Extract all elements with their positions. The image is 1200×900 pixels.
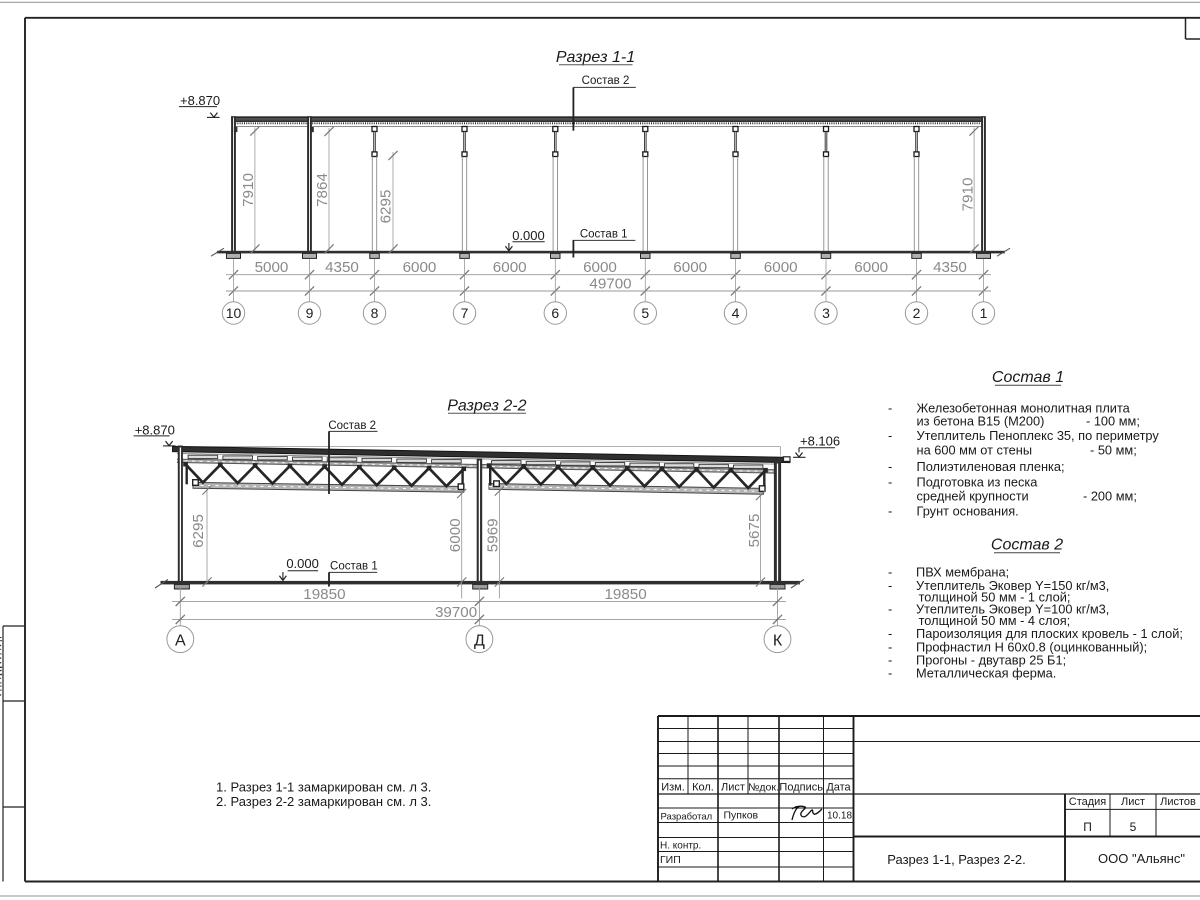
- svg-text:19850: 19850: [604, 586, 646, 603]
- svg-text:средней крупности: средней крупности: [917, 489, 1029, 504]
- svg-text:на 600 мм от стены: на 600 мм от стены: [917, 443, 1033, 458]
- svg-text:7910: 7910: [959, 178, 976, 212]
- svg-text:Разрез 1-1: Разрез 1-1: [556, 49, 635, 66]
- svg-text:4350: 4350: [933, 259, 967, 276]
- svg-text:8: 8: [371, 305, 379, 321]
- svg-text:49700: 49700: [589, 276, 631, 293]
- svg-text:6000: 6000: [854, 259, 888, 276]
- svg-text:6000: 6000: [583, 259, 617, 276]
- svg-text:5675: 5675: [746, 514, 763, 548]
- svg-text:Металлическая ферма.: Металлическая ферма.: [916, 666, 1056, 681]
- svg-text:5: 5: [641, 305, 649, 321]
- svg-text:П: П: [1083, 820, 1092, 834]
- svg-text:-: -: [888, 401, 892, 416]
- svg-text:6000: 6000: [764, 259, 798, 276]
- svg-text:-: -: [888, 475, 892, 490]
- svg-text:+8.106: +8.106: [800, 433, 840, 448]
- svg-text:Кол.: Кол.: [692, 781, 714, 793]
- svg-text:№док.: №док.: [748, 781, 779, 793]
- svg-text:Состав 1: Состав 1: [580, 228, 628, 240]
- svg-text:6000: 6000: [673, 259, 707, 276]
- svg-text:ООО "Альянс": ООО "Альянс": [1098, 851, 1185, 866]
- svg-text:- 50 мм;: - 50 мм;: [1090, 443, 1137, 458]
- svg-text:5: 5: [1130, 820, 1137, 834]
- svg-text:3: 3: [822, 305, 830, 321]
- svg-text:-: -: [888, 578, 892, 593]
- svg-text:Состав 2: Состав 2: [328, 420, 376, 432]
- svg-text:Полиэтиленовая пленка;: Полиэтиленовая пленка;: [917, 459, 1065, 474]
- svg-text:-: -: [888, 602, 892, 617]
- svg-text:6295: 6295: [378, 190, 395, 224]
- svg-text:Разрез 2-2: Разрез 2-2: [447, 398, 526, 415]
- svg-text:Состав 2: Состав 2: [582, 75, 630, 87]
- svg-text:Состав 1: Состав 1: [330, 560, 378, 572]
- svg-text:10: 10: [226, 305, 242, 321]
- svg-text:Подпись: Подпись: [779, 781, 823, 793]
- svg-text:6000: 6000: [403, 259, 437, 276]
- svg-text:5969: 5969: [485, 518, 502, 552]
- svg-text:Грунт основания.: Грунт основания.: [917, 504, 1019, 519]
- svg-text:Листов: Листов: [1160, 796, 1196, 808]
- svg-text:Утеплитель Пеноплекс 35, по пе: Утеплитель Пеноплекс 35, по периметру: [917, 428, 1160, 443]
- svg-text:0.000: 0.000: [286, 556, 319, 571]
- svg-text:1. Разрез 1-1 замаркирован см.: 1. Разрез 1-1 замаркирован см. л 3.: [216, 779, 431, 794]
- svg-text:А: А: [175, 632, 186, 649]
- svg-text:7864: 7864: [314, 173, 331, 207]
- svg-text:-: -: [888, 666, 892, 681]
- svg-text:-: -: [888, 504, 892, 519]
- svg-text:+8.870: +8.870: [180, 93, 220, 108]
- svg-text:5000: 5000: [255, 259, 289, 276]
- svg-text:-: -: [888, 459, 892, 474]
- svg-text:7: 7: [461, 305, 469, 321]
- svg-text:из бетона В15 (М200): из бетона В15 (М200): [917, 414, 1045, 429]
- svg-text:-: -: [888, 428, 892, 443]
- svg-text:10.18: 10.18: [827, 811, 852, 822]
- svg-text:Пупков: Пупков: [724, 810, 759, 822]
- svg-text:Состав 2: Состав 2: [991, 537, 1063, 554]
- svg-text:К: К: [773, 632, 783, 649]
- svg-text:0.000: 0.000: [512, 228, 545, 243]
- svg-text:- 200 мм;: - 200 мм;: [1083, 489, 1137, 504]
- svg-text:Д: Д: [474, 632, 485, 649]
- svg-text:2. Разрез 2-2 замаркирован см.: 2. Разрез 2-2 замаркирован см. л 3.: [216, 794, 431, 809]
- svg-text:4: 4: [732, 305, 740, 321]
- svg-text:4350: 4350: [325, 259, 359, 276]
- svg-text:Лист: Лист: [721, 781, 745, 793]
- svg-text:Разработал: Разработал: [661, 811, 713, 822]
- svg-text:9: 9: [306, 305, 314, 321]
- svg-text:39700: 39700: [435, 604, 477, 621]
- svg-text:Подготовка из песка: Подготовка из песка: [917, 475, 1039, 490]
- svg-text:6000: 6000: [493, 259, 527, 276]
- svg-text:Изм.: Изм.: [661, 781, 685, 793]
- svg-text:- 100 мм;: - 100 мм;: [1086, 414, 1140, 429]
- svg-text:19850: 19850: [303, 586, 345, 603]
- svg-text:Дата: Дата: [826, 781, 851, 793]
- svg-text:6: 6: [551, 305, 559, 321]
- svg-text:ГИП: ГИП: [660, 854, 681, 866]
- svg-text:6000: 6000: [447, 518, 464, 552]
- svg-text:Стадия: Стадия: [1069, 796, 1107, 808]
- svg-text:2: 2: [913, 305, 921, 321]
- svg-text:7910: 7910: [240, 173, 257, 207]
- svg-text:1: 1: [980, 305, 988, 321]
- svg-text:+8.870: +8.870: [135, 423, 175, 438]
- svg-text:Состав 1: Состав 1: [992, 369, 1064, 386]
- svg-text:6295: 6295: [190, 514, 207, 548]
- svg-text:Разрез 1-1, Разрез 2-2.: Разрез 1-1, Разрез 2-2.: [887, 852, 1025, 867]
- svg-text:Н. контр.: Н. контр.: [660, 841, 701, 852]
- svg-text:Лист: Лист: [1121, 796, 1145, 808]
